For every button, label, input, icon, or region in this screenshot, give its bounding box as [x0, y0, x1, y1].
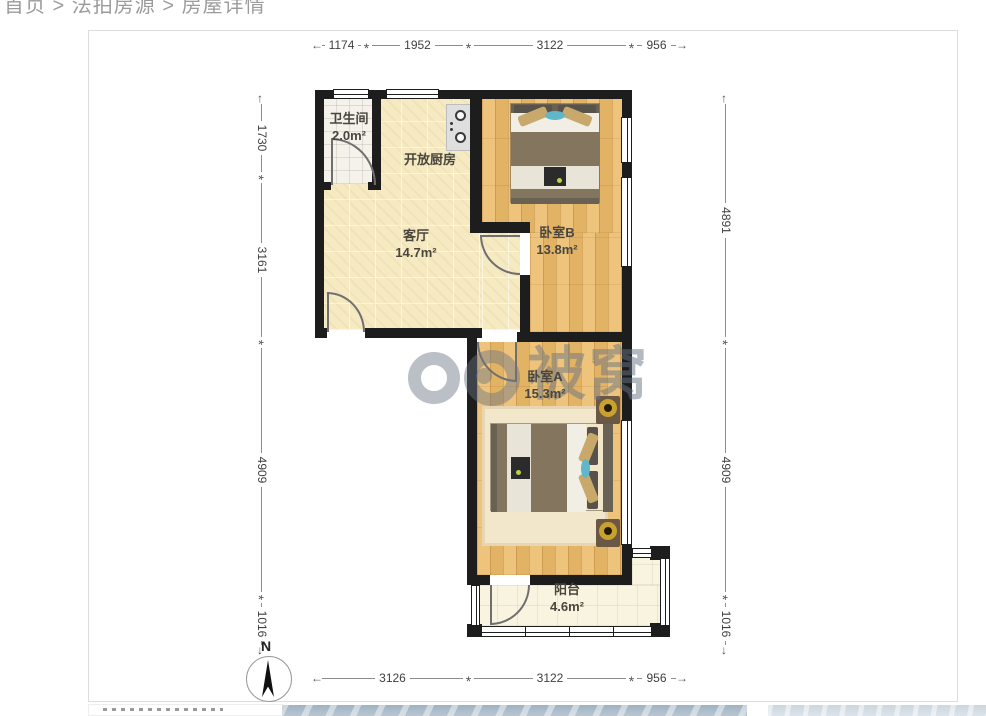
- dim-value: 1016: [719, 607, 733, 642]
- bed-tray: [511, 457, 530, 479]
- dim-value: 1174: [325, 38, 359, 52]
- bed-tray: [544, 167, 566, 186]
- breadcrumb[interactable]: 首页 > 法拍房源 > 房屋详情: [4, 0, 266, 18]
- tray-dot-icon: [516, 470, 521, 475]
- window: [621, 420, 632, 545]
- room-area: 15.3m²: [505, 385, 585, 402]
- dim-arrow-icon: ←: [311, 671, 322, 685]
- lamp-icon: [599, 522, 617, 540]
- compass-north-label: N: [261, 638, 271, 654]
- dim-line: [262, 277, 263, 337]
- room-name: 卧室B: [517, 224, 597, 241]
- dim-line: [435, 45, 463, 46]
- dimension-right-3: 1016 →: [719, 603, 733, 656]
- stove-burner-icon: [455, 110, 466, 121]
- dim-joint-icon: *: [626, 41, 637, 55]
- wall: [315, 328, 327, 338]
- window: [333, 89, 369, 99]
- dim-arrow-icon: ←: [311, 38, 322, 52]
- tray-dot-icon: [557, 178, 562, 183]
- window: [386, 89, 439, 99]
- stove-knob-icon: [450, 128, 453, 131]
- room-name: 卫生间: [318, 110, 380, 127]
- dim-joint-icon: *: [716, 337, 730, 348]
- stove-knob-icon: [450, 122, 453, 125]
- room-label-bathroom: 卫生间 2.0m²: [318, 110, 380, 144]
- dimension-bottom-2: 3122 *: [474, 671, 637, 685]
- window: [621, 117, 632, 163]
- thumbnail-photo-texture: [768, 705, 986, 716]
- dim-value: 3161: [255, 243, 269, 278]
- dim-arrow-icon: →: [676, 671, 687, 685]
- dim-line: [567, 678, 626, 679]
- balcony-window: [471, 585, 480, 626]
- dim-value: 3122: [533, 671, 568, 685]
- dim-joint-icon: *: [252, 592, 266, 603]
- dimension-top-2: 1952 *: [372, 38, 474, 52]
- dim-line: [262, 155, 263, 172]
- dimension-right-2: 4909 *: [719, 348, 733, 603]
- dim-joint-icon: *: [463, 41, 474, 55]
- dim-joint-icon: *: [626, 674, 637, 688]
- wall: [365, 328, 482, 338]
- dim-joint-icon: *: [716, 592, 730, 603]
- dim-line: [726, 487, 727, 592]
- bed-cushion: [581, 459, 590, 478]
- bed-duvet: [511, 132, 599, 166]
- dim-value: 1952: [400, 38, 435, 52]
- room-label-balcony: 阳台 4.6m²: [527, 581, 607, 615]
- wall: [467, 338, 477, 585]
- page: 首页 > 法拍房源 > 房屋详情: [0, 0, 986, 716]
- dim-arrow-icon: ←: [255, 93, 269, 104]
- dim-line: [262, 104, 263, 121]
- wall: [520, 275, 530, 338]
- dim-value: 956: [642, 671, 670, 685]
- dim-value: 3126: [375, 671, 410, 685]
- bed-duvet: [497, 424, 507, 512]
- balcony-window: [632, 548, 652, 558]
- dim-line: [474, 678, 533, 679]
- bed-cushion: [545, 111, 565, 120]
- room-name: 开放厨房: [388, 151, 472, 168]
- dim-arrow-icon: ←: [719, 93, 733, 104]
- thumbnail-photo-2[interactable]: [768, 705, 986, 716]
- dim-line: [567, 45, 626, 46]
- dim-arrow-icon: →: [676, 38, 687, 52]
- dim-joint-icon: *: [463, 674, 474, 688]
- dim-line: [726, 104, 727, 203]
- dim-line: [262, 348, 263, 453]
- room-area: 2.0m²: [318, 127, 380, 144]
- dim-value: 3122: [533, 38, 568, 52]
- dim-value: 4891: [719, 203, 733, 238]
- floor-balcony-ext: [632, 558, 660, 585]
- dimension-left-1: ← 1730 *: [255, 93, 269, 183]
- dim-line: [372, 45, 400, 46]
- dim-value: 4909: [719, 453, 733, 488]
- dimension-left-2: 3161 *: [255, 183, 269, 348]
- room-name: 卧室A: [505, 368, 585, 385]
- room-label-kitchen: 开放厨房: [388, 151, 472, 168]
- window: [621, 177, 632, 267]
- room-label-bedroom-a: 卧室A 15.3m²: [505, 368, 585, 402]
- dimension-top-3: 3122 *: [474, 38, 637, 52]
- room-area: 13.8m²: [517, 241, 597, 258]
- dim-arrow-icon: →: [719, 645, 733, 656]
- dim-line: [474, 45, 533, 46]
- balcony-window: [480, 626, 652, 637]
- thumbnail-floorplan-dims: [103, 708, 223, 711]
- balcony-window: [660, 558, 670, 626]
- dim-joint-icon: *: [361, 41, 372, 55]
- dimension-top-4: 956 →: [637, 38, 687, 52]
- thumbnail-photo-1[interactable]: [282, 705, 747, 716]
- bed-duvet: [511, 189, 599, 198]
- dim-line: [322, 678, 375, 679]
- dim-value: 956: [642, 38, 670, 52]
- room-area: 14.7m²: [376, 244, 456, 261]
- dim-line: [262, 183, 263, 243]
- dimension-bottom-1: ← 3126 *: [311, 671, 474, 685]
- dim-joint-icon: *: [252, 337, 266, 348]
- dim-value: 1016: [255, 607, 269, 642]
- dimension-top-1: ← 1174 *: [311, 38, 372, 52]
- dim-line: [726, 238, 727, 337]
- dimension-bottom-3: 956 →: [637, 671, 687, 685]
- dim-value: 4909: [255, 453, 269, 488]
- dim-line: [410, 678, 463, 679]
- room-name: 客厅: [376, 227, 456, 244]
- wall: [517, 332, 632, 342]
- wall: [467, 575, 490, 585]
- room-name: 阳台: [527, 581, 607, 598]
- bed-duvet: [531, 424, 567, 512]
- thumbnail-photo-texture: [282, 705, 747, 716]
- dim-line: [262, 487, 263, 592]
- room-label-bedroom-b: 卧室B 13.8m²: [517, 224, 597, 258]
- dim-line: [726, 348, 727, 453]
- stove-burner-icon: [455, 132, 466, 143]
- dimension-right-1: ← 4891 *: [719, 93, 733, 348]
- thumbnail-floorplan[interactable]: [88, 704, 284, 716]
- room-label-living: 客厅 14.7m²: [376, 227, 456, 261]
- dim-value: 1730: [255, 121, 269, 156]
- lamp-icon: [599, 399, 617, 417]
- wall: [323, 182, 331, 190]
- bed-headboard: [603, 424, 613, 512]
- bed-bedroom-a: [490, 423, 612, 511]
- room-area: 4.6m²: [527, 598, 607, 615]
- dim-joint-icon: *: [252, 172, 266, 183]
- bed-bedroom-b: [510, 103, 600, 203]
- dimension-left-3: 4909 *: [255, 348, 269, 603]
- bed-footboard: [511, 198, 599, 204]
